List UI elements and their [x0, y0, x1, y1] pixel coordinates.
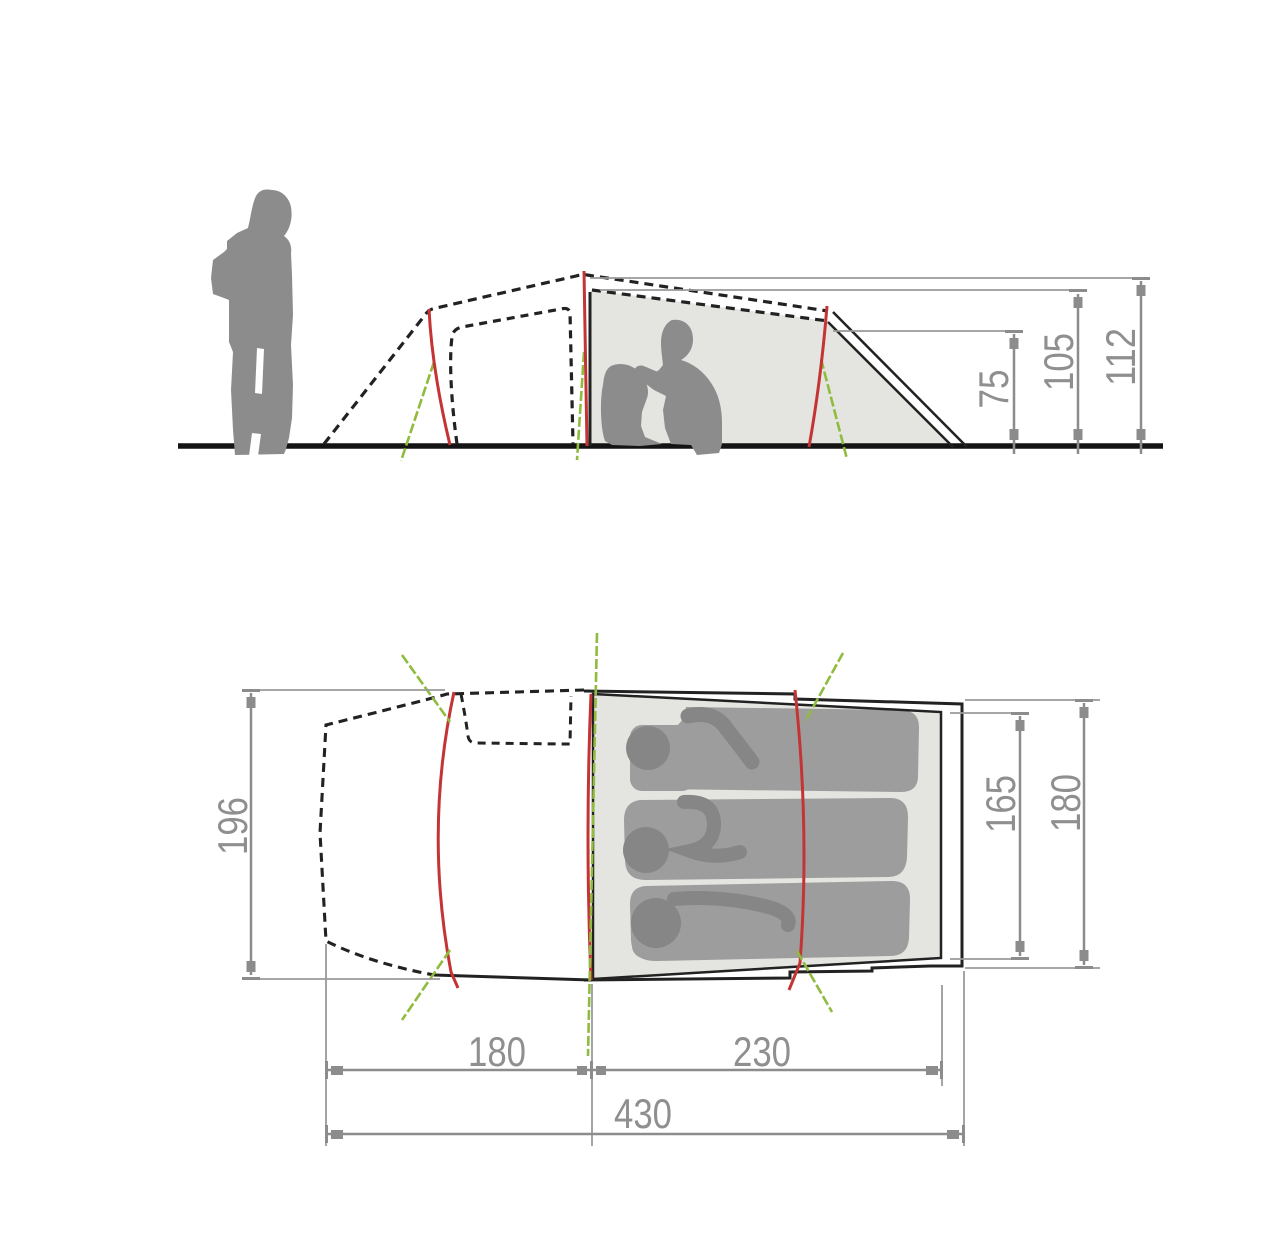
svg-text:180: 180: [1042, 774, 1089, 832]
svg-text:75: 75: [970, 370, 1017, 409]
svg-text:180: 180: [468, 1028, 526, 1075]
svg-text:230: 230: [733, 1028, 791, 1075]
svg-text:196: 196: [209, 797, 256, 855]
svg-text:165: 165: [977, 775, 1024, 833]
svg-text:105: 105: [1035, 333, 1082, 391]
svg-text:112: 112: [1097, 328, 1144, 386]
svg-text:430: 430: [614, 1090, 672, 1137]
